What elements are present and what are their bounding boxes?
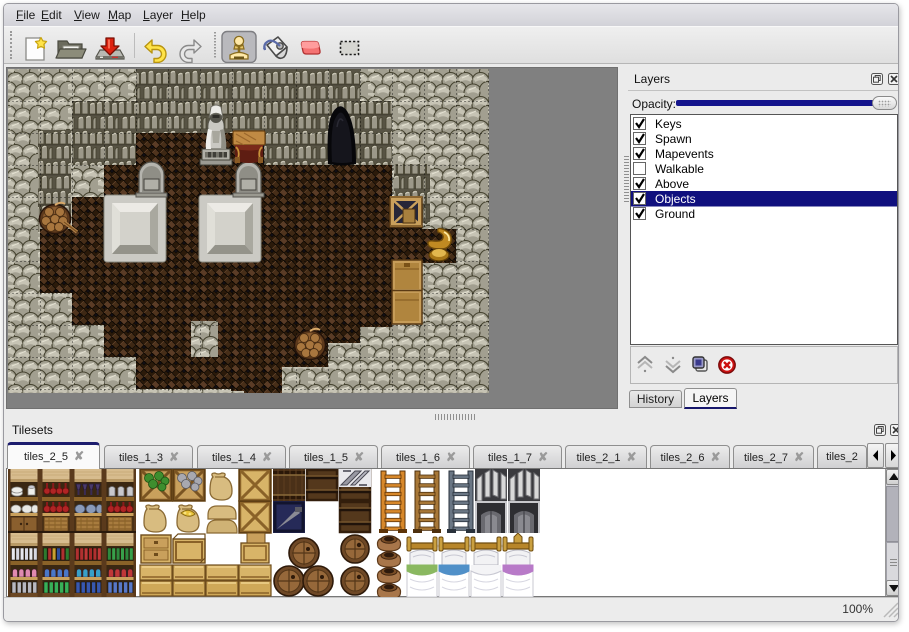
svg-text:Keys: Keys [655,117,682,131]
svg-text:Spawn: Spawn [655,132,692,146]
svg-text:Mapevents: Mapevents [655,147,714,161]
svg-text:Above: Above [655,177,689,191]
svg-text:Walkable: Walkable [655,162,704,176]
svg-text:Objects: Objects [655,192,696,206]
svg-text:Ground: Ground [655,207,695,221]
